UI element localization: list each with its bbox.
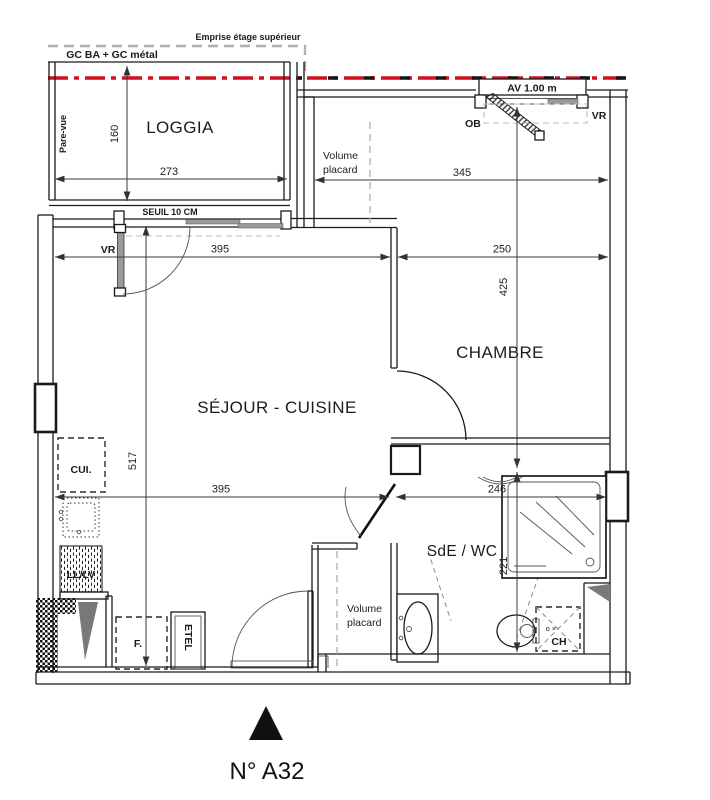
etel-label: ETEL xyxy=(182,624,194,651)
upper-dimensions: 345 395 250 425 517 xyxy=(55,107,608,666)
sejour-chambre-partition xyxy=(391,228,466,440)
sde-door-leaf xyxy=(359,484,395,538)
entry-placard: Volume placard xyxy=(312,543,382,668)
right-wall-window xyxy=(606,472,628,521)
chambre-door-swing-arc xyxy=(397,371,466,440)
door-swing-arc xyxy=(123,227,190,294)
placard-bottom-label-1: Volume xyxy=(347,603,382,615)
fridge-label: F. xyxy=(134,638,142,650)
dim-chambre-width: 250 xyxy=(493,244,511,256)
gc-label: GC BA + GC métal xyxy=(66,49,158,61)
water-heater: o × CH xyxy=(536,607,580,651)
unit-marker-triangle xyxy=(249,706,283,740)
etel-closet: ETEL xyxy=(171,612,205,669)
counter-wedge xyxy=(78,602,98,660)
dim-sejour-width-lower: 395 xyxy=(212,484,230,496)
loggia-room: LOGGIA Pare-vue SEUIL 10 CM xyxy=(49,62,290,217)
room-label-loggia: LOGGIA xyxy=(146,118,214,137)
gc-annotation: GC BA + GC métal xyxy=(48,49,290,62)
dim-sejour-width: 395 xyxy=(211,244,229,256)
pare-vue-label: Pare-vue xyxy=(58,115,68,153)
duct-niche xyxy=(584,583,610,654)
kitchen: CUI. LL/LV F. ETEL xyxy=(36,438,205,672)
window-jamb xyxy=(577,95,588,108)
ch-marks: o × xyxy=(546,624,557,633)
toilet xyxy=(497,615,539,647)
dim-chambre-depth: 425 xyxy=(498,278,510,296)
dim-chambre-zone: 345 xyxy=(453,167,471,179)
door-leaf xyxy=(118,228,125,290)
ch-label: CH xyxy=(551,636,566,648)
placard-top-label-2: placard xyxy=(323,164,358,176)
unit-label: N° A32 xyxy=(230,758,305,785)
chambre-window: AV 1.00 m OB VR xyxy=(465,79,607,140)
cui-label: CUI. xyxy=(71,464,92,476)
dim-loggia-depth: 160 xyxy=(109,125,121,143)
emprise-label: Emprise étage supérieur xyxy=(195,32,301,42)
window-pane xyxy=(548,99,578,104)
room-label-sejour: SÉJOUR - CUISINE xyxy=(197,398,356,417)
sde-room: SdE / WC xyxy=(318,438,610,672)
seuil-label: SEUIL 10 CM xyxy=(142,207,197,217)
entrance-door-swing-arc xyxy=(232,591,308,667)
room-label-sde: SdE / WC xyxy=(427,543,497,560)
structural-pier xyxy=(36,614,58,672)
counter-end xyxy=(60,592,108,599)
placard-bottom-label-2: placard xyxy=(347,617,382,629)
sde-door-swing-arc xyxy=(345,487,361,536)
dim-sde-width: 246 xyxy=(488,484,506,496)
dim-loggia-width: 273 xyxy=(160,166,178,178)
sejour-top-wall xyxy=(53,211,397,236)
chambre-placard: Volume placard xyxy=(323,122,370,223)
ll-lv-label: LL/LV xyxy=(67,569,95,581)
floor-plan-drawing: Emprise étage supérieur GC BA + GC métal… xyxy=(0,0,710,800)
sliding-window-pane xyxy=(186,220,240,225)
shower xyxy=(502,476,606,578)
sliding-window-pane xyxy=(238,224,283,229)
structural-pier xyxy=(36,598,76,614)
vr-living-label: VR xyxy=(101,244,116,256)
av-window-label: AV 1.00 m xyxy=(507,83,556,95)
dim-sejour-depth: 517 xyxy=(127,452,139,470)
niche-wedge xyxy=(587,584,610,602)
vr-bedroom-label: VR xyxy=(592,110,607,122)
ob-label: OB xyxy=(465,118,481,130)
technical-duct xyxy=(391,446,420,474)
loggia-right-wall xyxy=(297,62,314,228)
room-label-chambre: CHAMBRE xyxy=(456,343,544,362)
dim-sde-depth: 221 xyxy=(498,557,510,575)
french-door-vr: VR xyxy=(101,225,190,297)
placard-top-label-1: Volume xyxy=(323,150,358,162)
unit-marker: N° A32 xyxy=(230,706,305,785)
entrance-door xyxy=(231,591,328,668)
left-wall-window xyxy=(35,384,56,432)
